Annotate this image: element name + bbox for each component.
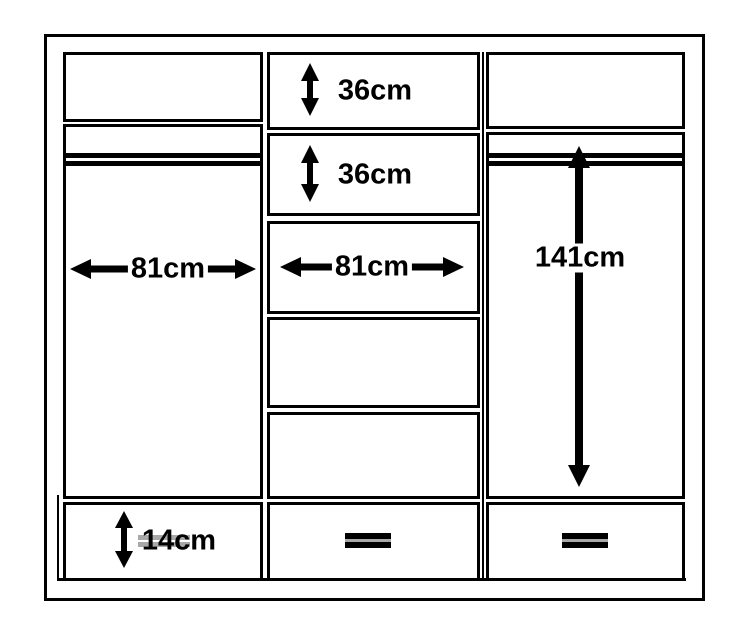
- right-door-edge-line: [482, 52, 484, 581]
- middle-compartment-4: [267, 317, 480, 408]
- left-side-panel-line: [57, 495, 59, 581]
- left-hanging-rail-bottom-bar: [66, 161, 260, 166]
- right-hanging-rail-top-bar: [489, 153, 682, 158]
- left-hanging-rail-top-bar: [66, 153, 260, 158]
- right-door-box: [486, 132, 685, 499]
- plinth-line: [57, 578, 686, 581]
- wardrobe-dimension-diagram: 36cm 36cm 81cm 81cm 141cm 14cm: [0, 0, 752, 636]
- dimension-label-middle-width: 81cm: [332, 253, 412, 282]
- dimension-label-bottom-drawer: 14cm: [142, 527, 216, 556]
- dimension-label-hanging-height: 141cm: [532, 244, 628, 273]
- dimension-label-left-door-width: 81cm: [128, 255, 208, 284]
- right-top-shelf-box: [486, 52, 685, 129]
- left-door-box: [63, 124, 263, 499]
- middle-compartment-5: [267, 412, 480, 499]
- dimension-label-top-drawer: 36cm: [338, 77, 412, 106]
- dimension-label-second-drawer: 36cm: [338, 161, 412, 190]
- right-hanging-rail-bottom-bar: [489, 161, 682, 166]
- left-top-shelf-box: [63, 52, 263, 122]
